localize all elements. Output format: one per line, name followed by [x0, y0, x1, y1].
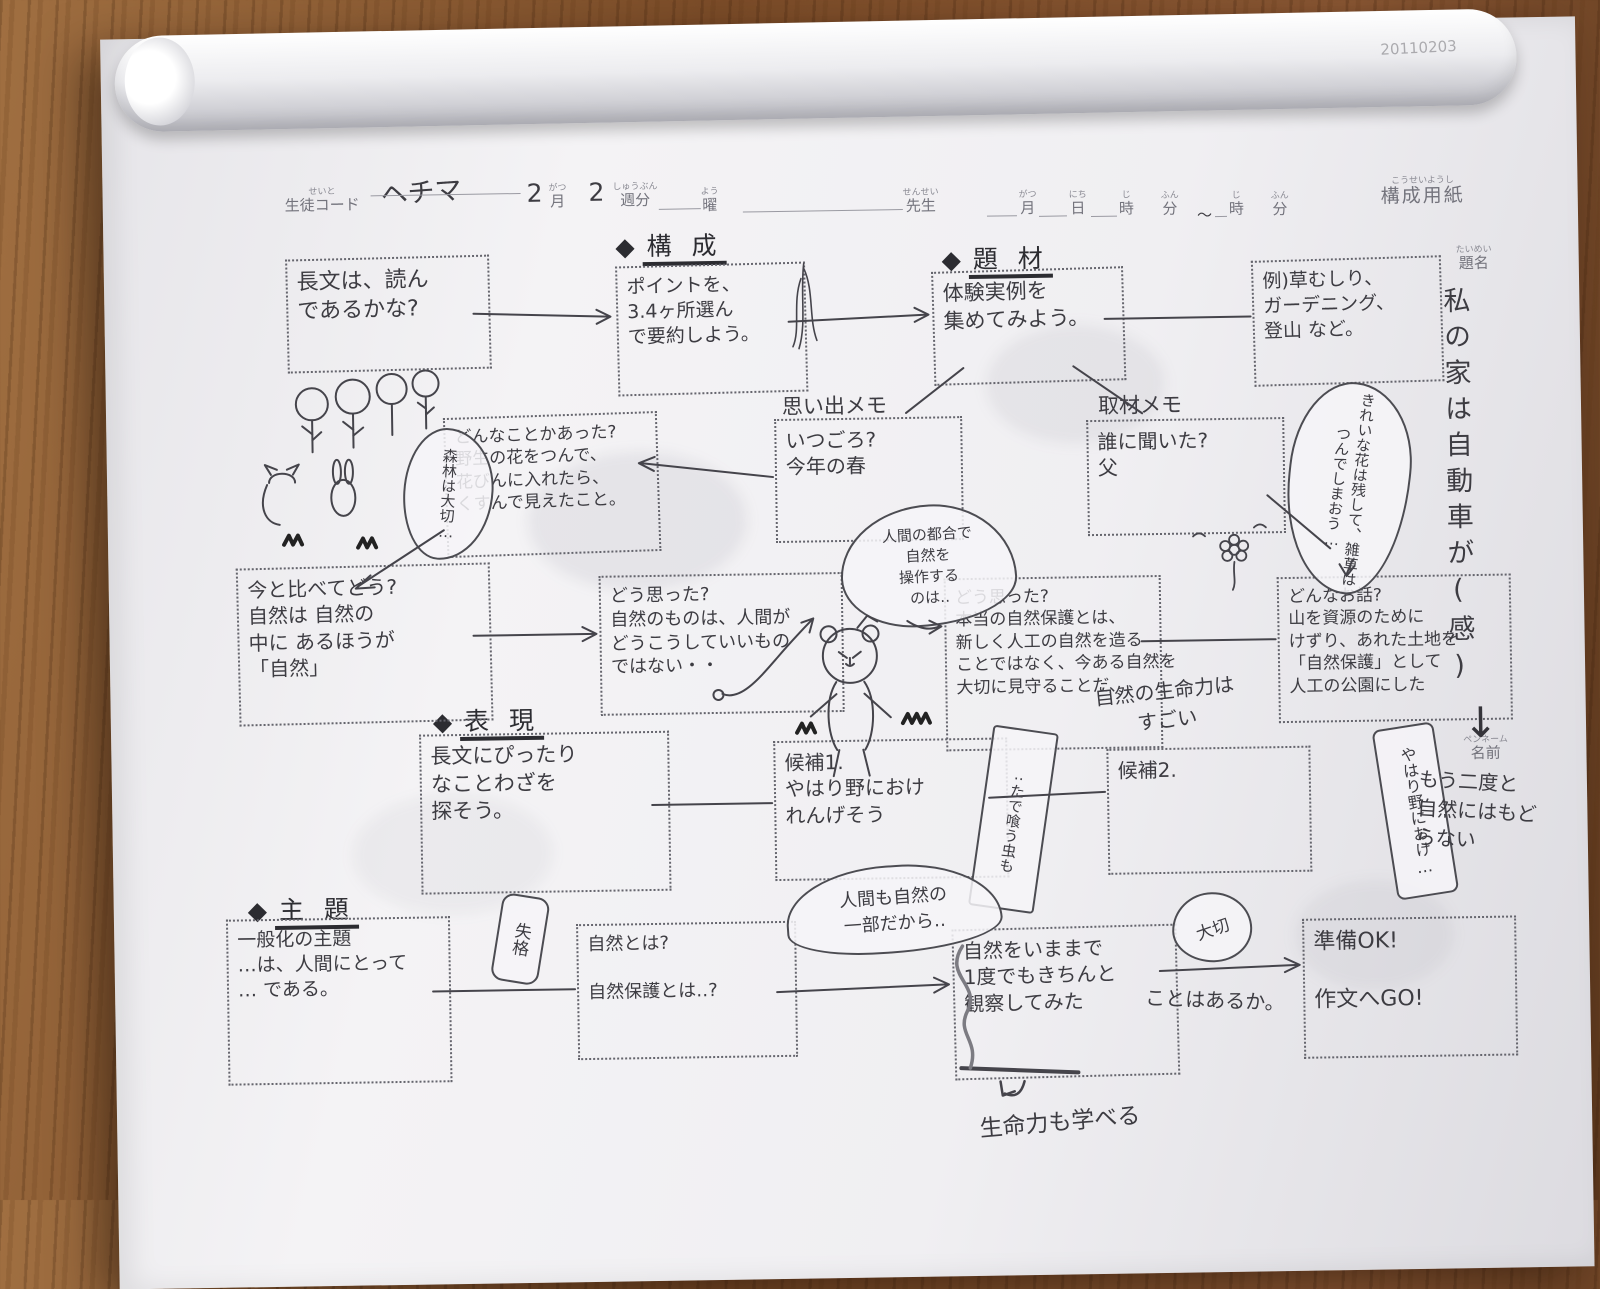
paper-curl-end [124, 37, 196, 126]
down-arrow: ↓ [1463, 698, 1499, 748]
section-kousei: ◆ 構 成 [615, 226, 727, 264]
month-label: がつ 月 [548, 184, 566, 210]
blank-line [1215, 216, 1227, 217]
box-interview-memo: 誰に聞いた? 父 [1086, 417, 1286, 536]
date-min1-label: ふん 分 [1161, 192, 1179, 218]
box-find-proverb: 長文にぴったり なことわざを 探そう。 [419, 731, 671, 895]
date-min2-label: ふん 分 [1271, 192, 1289, 218]
memory-memo-label: 思い出メモ [782, 389, 887, 421]
blank-line [659, 208, 701, 210]
box-candidate-2: 候補2. [1106, 746, 1312, 875]
week-label: しゅうぶん 週分 [612, 183, 657, 209]
box-points-summary: ポイントを、 3.4ヶ所選ん で要約しよう。 [615, 262, 808, 397]
arrow-nature-to-observed [777, 977, 949, 995]
pretty-flower-bubble: きれいな花は残して、雑草はつんでしまおう… [1276, 376, 1420, 600]
date-hour2-label: じ 時 [1229, 192, 1244, 218]
month-value: 2 [526, 179, 542, 208]
forest-sketch [295, 370, 439, 452]
cat-sketch [262, 465, 299, 526]
corner-code: 20110203 [1380, 37, 1457, 59]
box-ready-go: 準備OK! 作文へGO! [1302, 915, 1518, 1058]
arrow-point-to-taiken [788, 308, 928, 324]
box-what-thought-1: どう思った? 自然のものは、人間が どうこうしていいもの ではない・・ [599, 572, 845, 716]
box-collect-examples: 体験実例を 集めてみよう。 [931, 266, 1126, 386]
date-day-label: にち 日 [1069, 191, 1087, 217]
arrow-compare-to-thought1 [473, 627, 596, 643]
shikkaku-tag: 失格 [490, 892, 551, 986]
tilde: ～ [1197, 204, 1212, 225]
arrow-choubun-to-point [473, 310, 610, 326]
box-generalized-theme: 一般化の主題 …は、人間にとって … である。 [226, 916, 453, 1085]
week-value: 2 [588, 178, 604, 207]
date-month-label: がつ 月 [1019, 191, 1037, 217]
taisetsu-bubble: 大切 [1172, 892, 1253, 963]
teacher-label: せんせい 先生 [903, 188, 939, 214]
box-examples: 例)草むしり、 ガーデニング、 登山 など。 [1251, 255, 1445, 387]
arrow-observed-to-ready [1160, 958, 1300, 974]
blank-line [987, 215, 1017, 216]
blank-line [743, 209, 903, 213]
date-hour1-label: じ 時 [1119, 191, 1134, 217]
blank-line [1039, 215, 1067, 216]
rabbit-sketch [331, 460, 356, 516]
student-code-value: ヘチマ [379, 168, 462, 212]
title-label: たいめい 題名 [1456, 246, 1492, 272]
learn-life-force-note: 生命力も学べる [978, 1096, 1141, 1144]
worksheet-paper: 20110203 せいと 生徒コード ヘチマ 2 がつ 月 2 しゅうぶん 週分… [100, 16, 1594, 1289]
line-taiken-to-rei [1105, 317, 1251, 319]
line-theme-to-nature [433, 989, 575, 991]
box-what-is-nature: 自然とは? 自然保護とは‥? [576, 921, 798, 1060]
box-compare-now: 今と比べてどう? 自然は 自然の 中に あるほうが 「自然」 [236, 562, 494, 726]
student-code-label: せいと 生徒コード [284, 188, 359, 215]
day-of-week-label: よう 曜 [700, 188, 718, 214]
interview-memo-label: 取材メモ [1098, 389, 1182, 420]
sheet-name: こうせいようし 構成用紙 [1380, 176, 1464, 207]
paper-curl-edge [114, 8, 1518, 132]
observed-nature-overflow: ことはあるか。 [1145, 982, 1286, 1016]
box-long-text-question: 長文は、読ん であるかな? [285, 255, 492, 374]
blank-line [1091, 216, 1117, 217]
never-return-note: もう二度と 自然にはもど らない [1415, 763, 1539, 856]
